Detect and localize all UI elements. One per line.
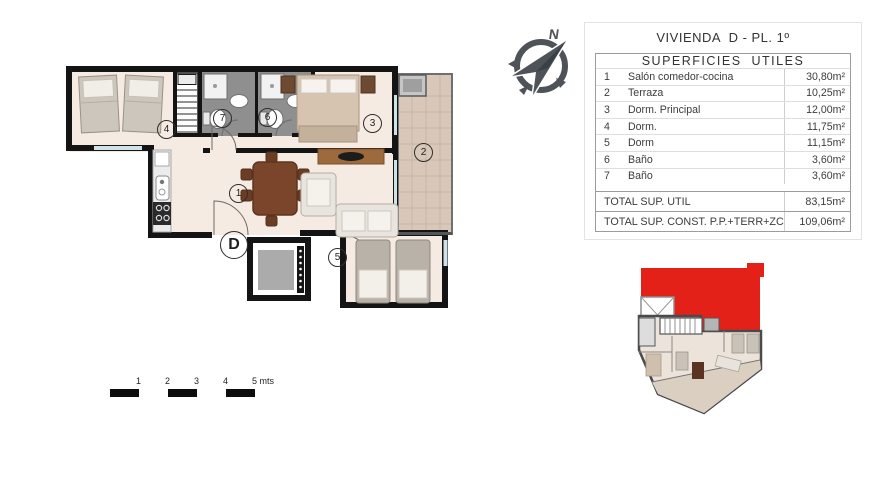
terrace-parapet [398,232,452,235]
room-label-2: 2 [414,143,433,162]
compass-icon [508,41,566,95]
total-util-row: TOTAL SUP. UTIL 83,15m² [596,191,850,211]
scale-bar: 1 2 3 4 5 mts [100,376,270,402]
location-key-plan [639,263,764,413]
table-row: 6 Baño 3,60m² [596,151,850,168]
room-label-4: 4 [157,120,176,139]
elevator-core [250,240,308,298]
table-row: 4 Dorm. 11,75m² [596,118,850,135]
table-row: 5 Dorm 11,15m² [596,134,850,151]
tv-cabinet [318,149,384,164]
table-spacer-row [596,184,850,191]
areas-card: VIVIENDA D - PL. 1º SUPERFICIES UTILES 1… [584,22,862,240]
table-row: 3 Dorm. Principal 12,00m² [596,101,850,118]
armchair [301,173,336,216]
scale-tick-2: 2 [165,376,170,386]
sofa [336,204,398,237]
scale-bar-segment [110,389,139,397]
scale-tick-1: 1 [136,376,141,386]
bathroom-7 [201,72,255,136]
plan-title: VIVIENDA D - PL. 1º [585,30,861,45]
table-row: 1 Salón comedor-cocina 30,80m² [596,68,850,85]
room-label-5: 5 [328,248,347,267]
areas-table: SUPERFICIES UTILES 1 Salón comedor-cocin… [595,53,851,232]
areas-table-header: SUPERFICIES UTILES [596,54,850,68]
kitchen [153,150,171,232]
scale-tick-5: 5 mts [252,376,274,386]
room-label-3: 3 [363,114,382,133]
page: N 1 2 3 4 5 6 7 D VIVIENDA D - PL. 1º SU… [0,0,890,500]
unit-letter-label: D [220,231,248,259]
room-label-1: 1 [229,184,248,203]
scale-bar-segment [168,389,197,397]
room-label-6: 6 [258,108,277,127]
scale-bar-segment [226,389,255,397]
table-row: 7 Baño 3,60m² [596,168,850,185]
scale-tick-3: 3 [194,376,199,386]
scale-tick-4: 4 [223,376,228,386]
utility-shaft [176,73,198,135]
total-const-row: TOTAL SUP. CONST. P.P.+TERR+ZC 109,06m² [596,211,850,231]
room-label-7: 7 [213,109,232,128]
table-row: 2 Terraza 10,25m² [596,85,850,102]
